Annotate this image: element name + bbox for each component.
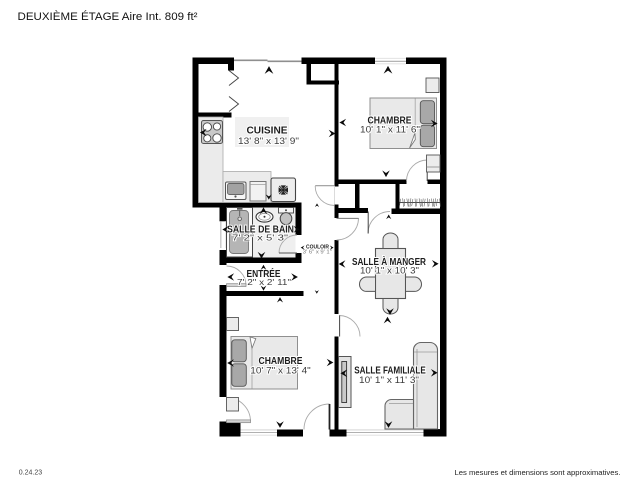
svg-text:0.24.23: 0.24.23 — [19, 470, 42, 477]
svg-text:10' 1" x 11' 6": 10' 1" x 11' 6" — [360, 125, 420, 135]
svg-text:10' 1" x 10' 3": 10' 1" x 10' 3" — [360, 265, 419, 275]
svg-text:3' 6" x 9' 1": 3' 6" x 9' 1" — [303, 249, 332, 255]
svg-text:DEUXIÈME ÉTAGE Aire Int. 809 f: DEUXIÈME ÉTAGE Aire Int. 809 ft² — [18, 10, 198, 23]
svg-text:CUISINE: CUISINE — [247, 126, 288, 137]
svg-text:10' 1" x 11' 3": 10' 1" x 11' 3" — [359, 375, 419, 385]
svg-text:10' 7" x 13' 4": 10' 7" x 13' 4" — [250, 365, 311, 375]
svg-text:13' 8" x 13' 9": 13' 8" x 13' 9" — [238, 136, 299, 146]
svg-text:Les mesures et dimensions sont: Les mesures et dimensions sont approxima… — [455, 468, 621, 477]
svg-text:7' 2" x 2' 11": 7' 2" x 2' 11" — [237, 277, 291, 287]
svg-text:7' 2" x 5' 3": 7' 2" x 5' 3" — [232, 233, 288, 243]
